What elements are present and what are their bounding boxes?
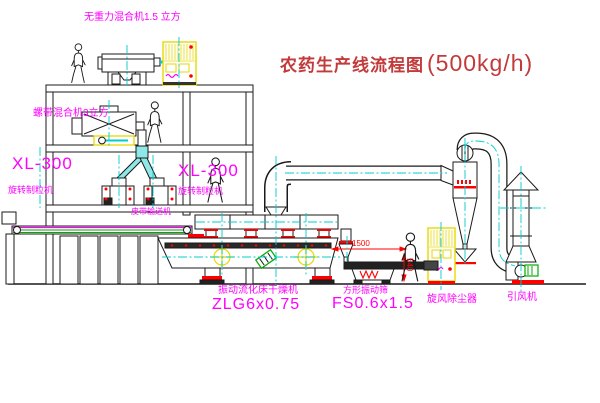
title-text: 农药生产线流程图 xyxy=(280,51,424,76)
dimension-sieve-length: 1500 xyxy=(352,240,370,248)
label-granulator-left-model: XL-300 xyxy=(12,155,73,172)
label-mixer-mid: 螺带混合机3立方 xyxy=(33,109,109,119)
title-capacity: (500kg/h) xyxy=(427,50,533,77)
label-granulator-left-name: 旋转制粒机 xyxy=(8,186,53,195)
person-roof xyxy=(72,44,85,83)
label-mixer-top: 无重力混合机1.5 立方 xyxy=(84,13,181,23)
label-dryer-model: ZLG6x0.75 xyxy=(212,297,300,313)
diagram-title: 农药生产线流程图 (500kg/h) xyxy=(280,50,533,77)
vibrating-sieve xyxy=(332,229,438,284)
label-sieve-name: 方形振动筛 xyxy=(343,286,388,295)
label-fan: 引风机 xyxy=(507,293,537,303)
label-granulator-mid-model: XL-300 xyxy=(178,162,239,179)
label-cyclone: 旋风除尘器 xyxy=(427,295,477,305)
bucket-elevator-top xyxy=(163,42,196,85)
gravity-free-mixer xyxy=(98,54,171,85)
person-floor2 xyxy=(148,102,162,142)
label-sieve-model: FS0.6x1.5 xyxy=(332,296,414,312)
bucket-elevator-ground xyxy=(428,228,455,284)
rotary-granulators xyxy=(102,178,176,205)
label-belt-conveyor: 皮带输送机 xyxy=(131,208,171,216)
dimension-sieve-height: 540 xyxy=(405,258,413,271)
label-granulator-mid-name: 旋转制粒机 xyxy=(178,187,223,196)
label-dryer-name: 振动流化床干燥机 xyxy=(218,286,298,296)
flow-diagram: 农药生产线流程图 (500kg/h) 无重力混合机1.5 立方 螺带混合机3立方… xyxy=(0,0,600,403)
